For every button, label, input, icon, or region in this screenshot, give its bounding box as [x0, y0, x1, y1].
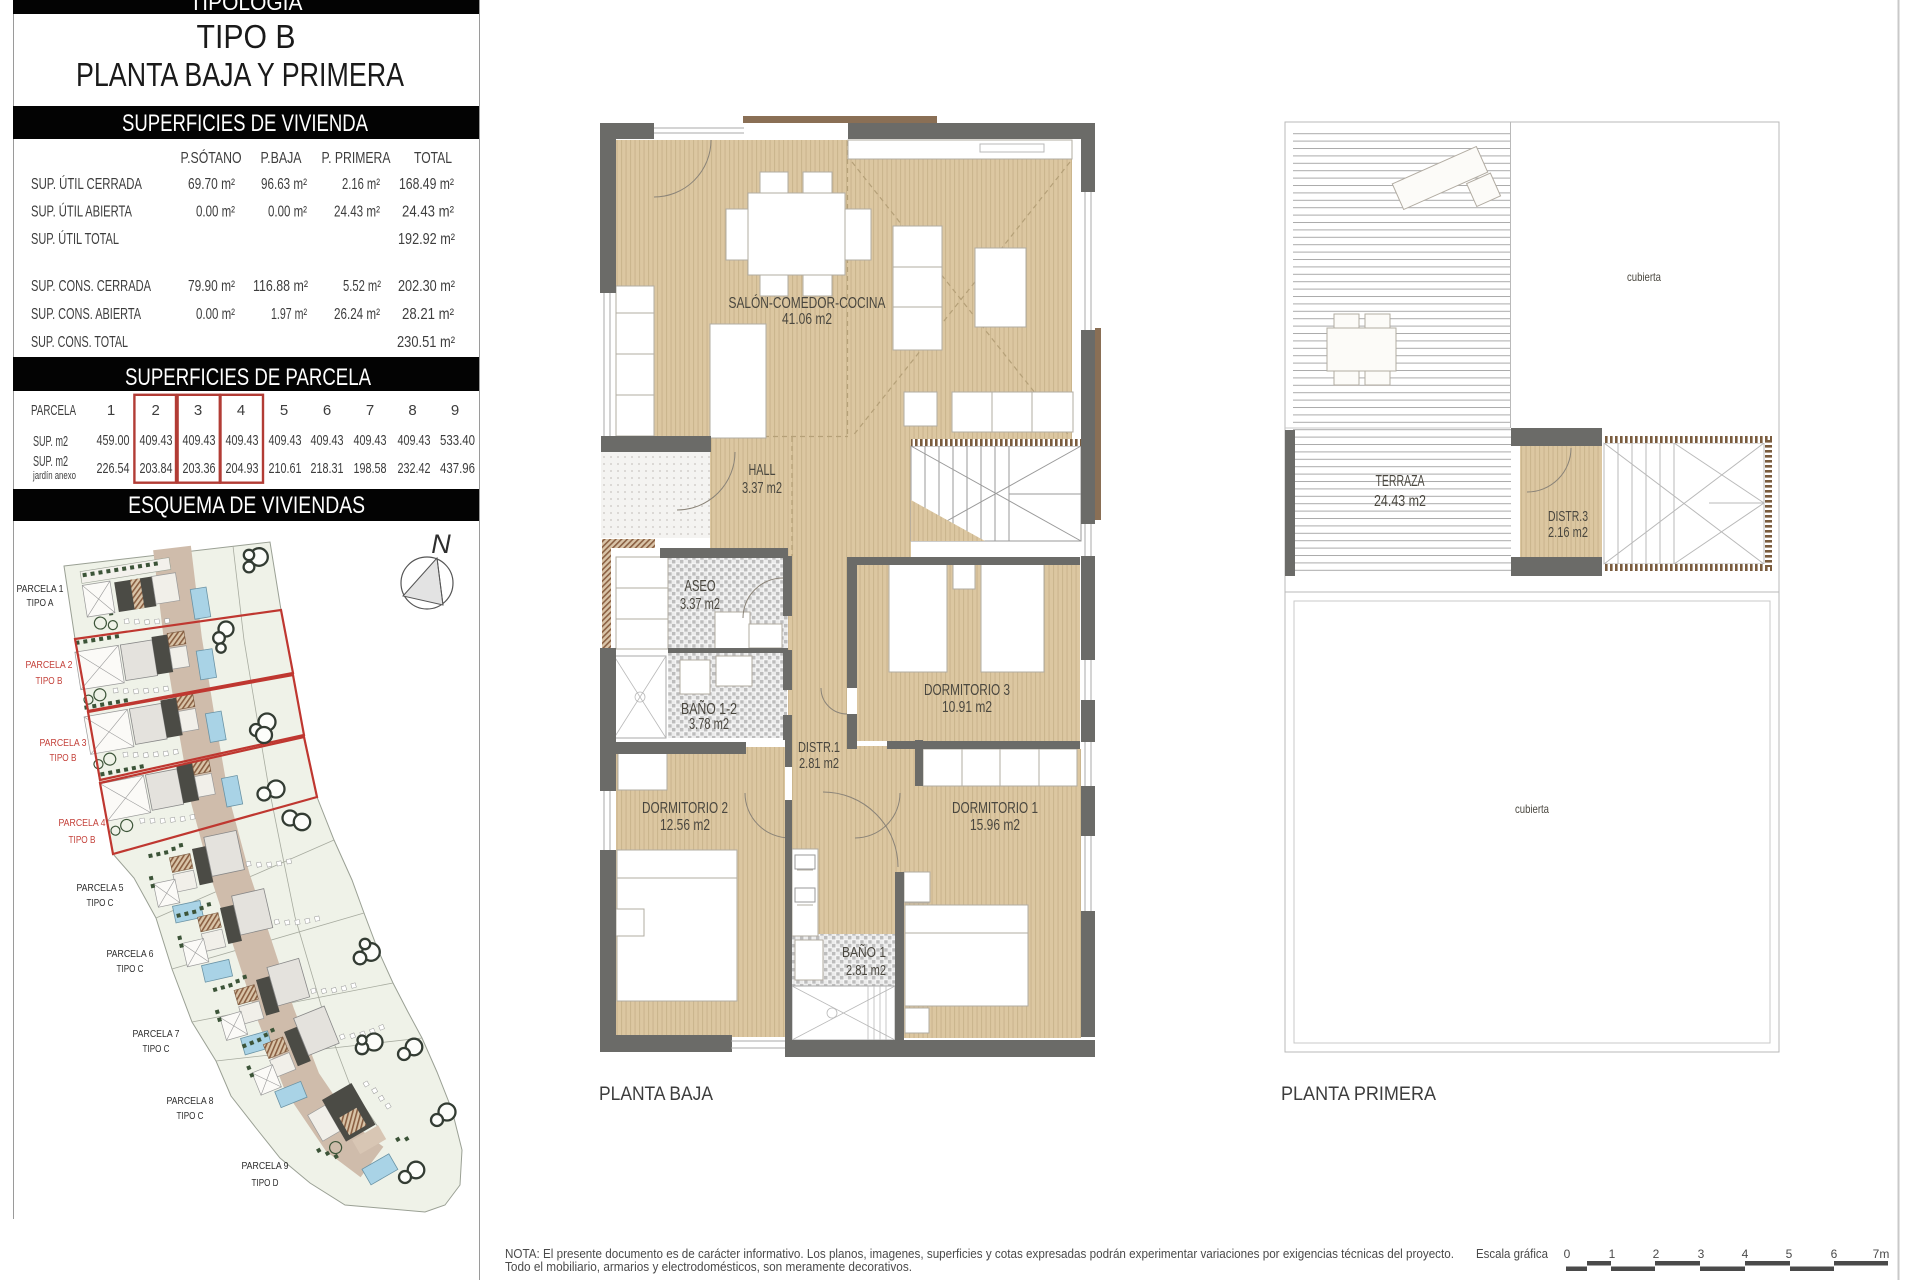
svg-text:PARCELA 8: PARCELA 8: [167, 1095, 214, 1107]
svg-text:24.43 m²: 24.43 m²: [402, 204, 454, 221]
svg-text:ESQUEMA DE VIVIENDAS: ESQUEMA DE VIVIENDAS: [128, 492, 365, 519]
svg-text:0: 0: [1564, 1247, 1571, 1261]
svg-text:NOTA: El presente documento es: NOTA: El presente documento es de caráct…: [505, 1247, 1454, 1261]
svg-text:204.93: 204.93: [226, 460, 259, 477]
svg-text:Todo el mobiliario, armarios y: Todo el mobiliario, armarios y electrodo…: [505, 1260, 912, 1274]
svg-text:198.58: 198.58: [354, 460, 387, 477]
svg-text:DORMITORIO 3: DORMITORIO 3: [924, 682, 1010, 699]
svg-text:P.BAJA: P.BAJA: [261, 150, 303, 167]
svg-text:2: 2: [1653, 1247, 1660, 1261]
svg-text:79.90 m²: 79.90 m²: [188, 278, 235, 295]
svg-text:232.42: 232.42: [398, 460, 431, 477]
svg-text:5: 5: [1786, 1247, 1793, 1261]
svg-text:3.37 m2: 3.37 m2: [742, 480, 782, 497]
svg-text:409.43: 409.43: [398, 432, 431, 449]
svg-text:533.40: 533.40: [440, 432, 475, 449]
svg-text:P.SÓTANO: P.SÓTANO: [181, 150, 242, 167]
svg-text:TIPOLOGIA: TIPOLOGIA: [190, 0, 303, 15]
svg-text:PARCELA 3: PARCELA 3: [40, 737, 87, 749]
svg-text:SUPERFICIES DE PARCELA: SUPERFICIES DE PARCELA: [125, 364, 371, 391]
svg-text:409.43: 409.43: [311, 432, 344, 449]
svg-text:7: 7: [366, 402, 374, 419]
svg-text:24.43 m²: 24.43 m²: [334, 204, 380, 221]
svg-text:409.43: 409.43: [226, 432, 259, 449]
svg-text:1: 1: [107, 402, 115, 419]
svg-text:TIPO B: TIPO B: [197, 18, 296, 55]
svg-text:26.24 m²: 26.24 m²: [334, 306, 380, 323]
svg-text:192.92 m²: 192.92 m²: [398, 231, 455, 248]
svg-text:3: 3: [194, 402, 202, 419]
svg-text:1: 1: [1609, 1247, 1616, 1261]
svg-text:41.06 m2: 41.06 m2: [782, 311, 832, 328]
svg-text:SUP. CONS. CERRADA: SUP. CONS. CERRADA: [31, 278, 151, 295]
svg-text:SUP. CONS. TOTAL: SUP. CONS. TOTAL: [31, 334, 128, 351]
svg-text:409.43: 409.43: [183, 432, 216, 449]
svg-text:2.16 m²: 2.16 m²: [342, 176, 380, 193]
svg-text:2.81 m2: 2.81 m2: [846, 963, 886, 979]
svg-text:8: 8: [408, 402, 416, 419]
svg-text:TIPO C: TIPO C: [117, 963, 144, 975]
svg-text:PLANTA BAJA Y PRIMERA: PLANTA BAJA Y PRIMERA: [76, 56, 404, 93]
svg-text:TERRAZA: TERRAZA: [1376, 473, 1425, 490]
svg-text:TIPO C: TIPO C: [143, 1043, 170, 1055]
svg-text:10.91 m2: 10.91 m2: [942, 699, 992, 716]
svg-text:TIPO C: TIPO C: [87, 897, 114, 909]
svg-text:3.37 m2: 3.37 m2: [680, 596, 720, 613]
svg-text:cubierta: cubierta: [1627, 270, 1661, 284]
svg-text:HALL: HALL: [749, 462, 776, 479]
svg-text:SUP. ÚTIL CERRADA: SUP. ÚTIL CERRADA: [31, 176, 142, 193]
svg-text:DORMITORIO 2: DORMITORIO 2: [642, 800, 728, 817]
svg-text:jardín anexo: jardín anexo: [32, 470, 76, 482]
svg-text:SUP. CONS. ABIERTA: SUP. CONS. ABIERTA: [31, 306, 141, 323]
svg-text:437.96: 437.96: [440, 460, 475, 477]
svg-text:203.84: 203.84: [140, 460, 173, 477]
svg-text:TIPO D: TIPO D: [252, 1177, 279, 1189]
svg-text:PARCELA 2: PARCELA 2: [26, 659, 73, 671]
svg-text:168.49 m²: 168.49 m²: [399, 176, 454, 193]
svg-text:cubierta: cubierta: [1515, 802, 1549, 816]
svg-text:9: 9: [451, 402, 459, 419]
svg-text:TIPO B: TIPO B: [36, 675, 63, 687]
svg-text:409.43: 409.43: [269, 432, 302, 449]
svg-text:24.43 m2: 24.43 m2: [1374, 493, 1426, 510]
svg-text:TIPO A: TIPO A: [27, 597, 54, 609]
svg-text:2.81 m2: 2.81 m2: [799, 756, 839, 772]
svg-text:1.97 m²: 1.97 m²: [271, 306, 307, 323]
svg-text:96.63 m²: 96.63 m²: [261, 176, 307, 193]
svg-text:116.88 m²: 116.88 m²: [253, 278, 308, 295]
svg-text:218.31: 218.31: [311, 460, 344, 477]
svg-text:Escala gráfica: Escala gráfica: [1476, 1247, 1548, 1261]
svg-text:SUPERFICIES DE VIVIENDA: SUPERFICIES DE VIVIENDA: [122, 110, 368, 137]
svg-text:PARCELA 4: PARCELA 4: [59, 817, 106, 829]
svg-text:2: 2: [152, 402, 160, 419]
svg-text:210.61: 210.61: [269, 460, 302, 477]
svg-text:DORMITORIO 1: DORMITORIO 1: [952, 800, 1038, 817]
svg-text:TIPO B: TIPO B: [50, 752, 77, 764]
svg-text:4: 4: [237, 402, 245, 419]
svg-text:0.00 m²: 0.00 m²: [268, 204, 307, 221]
svg-text:5: 5: [280, 402, 288, 419]
svg-text:PARCELA 5: PARCELA 5: [77, 882, 124, 894]
svg-text:P. PRIMERA: P. PRIMERA: [322, 150, 392, 167]
svg-text:203.36: 203.36: [183, 460, 216, 477]
svg-text:3: 3: [1698, 1247, 1705, 1261]
svg-text:6: 6: [323, 402, 331, 419]
svg-text:BAÑO 1: BAÑO 1: [842, 944, 886, 961]
svg-text:7m: 7m: [1873, 1247, 1890, 1261]
svg-text:PARCELA 7: PARCELA 7: [133, 1028, 180, 1040]
svg-text:202.30 m²: 202.30 m²: [398, 278, 455, 295]
svg-text:DISTR.3: DISTR.3: [1548, 509, 1588, 525]
svg-text:5.52 m²: 5.52 m²: [343, 278, 381, 295]
svg-text:TIPO B: TIPO B: [69, 834, 96, 846]
svg-text:PLANTA BAJA: PLANTA BAJA: [599, 1083, 713, 1105]
svg-text:SALÓN-COMEDOR-COCINA: SALÓN-COMEDOR-COCINA: [729, 295, 886, 312]
svg-text:SUP. m2: SUP. m2: [33, 453, 68, 470]
svg-text:TIPO C: TIPO C: [177, 1110, 204, 1122]
svg-text:459.00: 459.00: [97, 432, 130, 449]
svg-text:PARCELA 9: PARCELA 9: [242, 1160, 289, 1172]
svg-text:SUP. m2: SUP. m2: [33, 433, 68, 450]
svg-text:SUP. ÚTIL TOTAL: SUP. ÚTIL TOTAL: [31, 231, 119, 248]
svg-text:N: N: [431, 529, 451, 559]
svg-text:PARCELA: PARCELA: [31, 402, 76, 419]
svg-text:226.54: 226.54: [97, 460, 130, 477]
svg-text:12.56 m2: 12.56 m2: [660, 817, 710, 834]
svg-text:ASEO: ASEO: [685, 578, 716, 595]
svg-text:4: 4: [1742, 1247, 1749, 1261]
svg-text:28.21 m²: 28.21 m²: [402, 306, 454, 323]
svg-text:6: 6: [1831, 1247, 1838, 1261]
svg-text:PARCELA 6: PARCELA 6: [107, 948, 154, 960]
svg-text:409.43: 409.43: [140, 432, 173, 449]
svg-text:3.78 m2: 3.78 m2: [689, 716, 729, 733]
svg-text:PLANTA PRIMERA: PLANTA PRIMERA: [1281, 1083, 1436, 1105]
svg-text:230.51 m²: 230.51 m²: [397, 334, 455, 351]
svg-text:TOTAL: TOTAL: [414, 150, 452, 167]
svg-text:DISTR.1: DISTR.1: [798, 740, 840, 756]
svg-text:SUP. ÚTIL ABIERTA: SUP. ÚTIL ABIERTA: [31, 204, 132, 221]
svg-text:2.16 m2: 2.16 m2: [1548, 525, 1588, 541]
svg-text:15.96 m2: 15.96 m2: [970, 817, 1020, 834]
svg-text:0.00 m²: 0.00 m²: [196, 306, 235, 323]
svg-text:409.43: 409.43: [354, 432, 387, 449]
svg-text:PARCELA 1: PARCELA 1: [17, 583, 64, 595]
svg-text:0.00 m²: 0.00 m²: [196, 204, 235, 221]
svg-text:69.70 m²: 69.70 m²: [188, 176, 235, 193]
